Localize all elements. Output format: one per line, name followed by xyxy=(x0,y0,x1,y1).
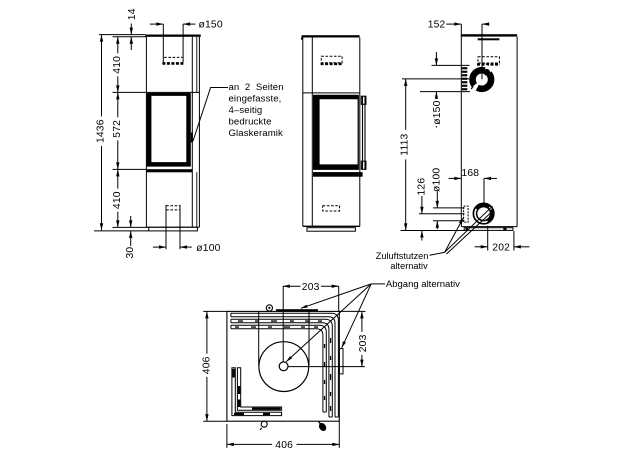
svg-text:410: 410 xyxy=(112,191,123,209)
svg-text:14: 14 xyxy=(127,8,138,20)
svg-text:ø150: ø150 xyxy=(432,100,443,124)
svg-text:30: 30 xyxy=(125,247,136,259)
svg-text:Zuluftstutzen: Zuluftstutzen xyxy=(376,251,429,261)
svg-text:202: 202 xyxy=(492,243,510,254)
svg-text:168: 168 xyxy=(461,168,479,179)
svg-text:ø150: ø150 xyxy=(199,20,223,31)
svg-text:4–seitig: 4–seitig xyxy=(229,105,263,116)
svg-text:Glaskeramik: Glaskeramik xyxy=(229,128,284,139)
svg-text:203: 203 xyxy=(302,282,320,293)
svg-text:an 2 Seiten: an 2 Seiten xyxy=(229,82,284,93)
svg-text:eingefasste,: eingefasste, xyxy=(229,94,282,105)
svg-text:406: 406 xyxy=(201,356,212,374)
svg-text:1113: 1113 xyxy=(400,133,411,155)
svg-text:203: 203 xyxy=(358,334,369,352)
svg-text:406: 406 xyxy=(275,440,293,451)
svg-text:ø100: ø100 xyxy=(196,243,220,254)
svg-text:152: 152 xyxy=(428,20,446,31)
svg-text:1436: 1436 xyxy=(96,119,107,143)
svg-text:126: 126 xyxy=(416,178,427,196)
svg-text:alternativ: alternativ xyxy=(390,261,428,271)
svg-text:572: 572 xyxy=(112,120,123,138)
svg-text:410: 410 xyxy=(112,56,123,74)
svg-text:ø100: ø100 xyxy=(431,168,442,192)
svg-text:Abgang alternativ: Abgang alternativ xyxy=(386,279,460,290)
svg-text:bedruckte: bedruckte xyxy=(229,117,272,128)
